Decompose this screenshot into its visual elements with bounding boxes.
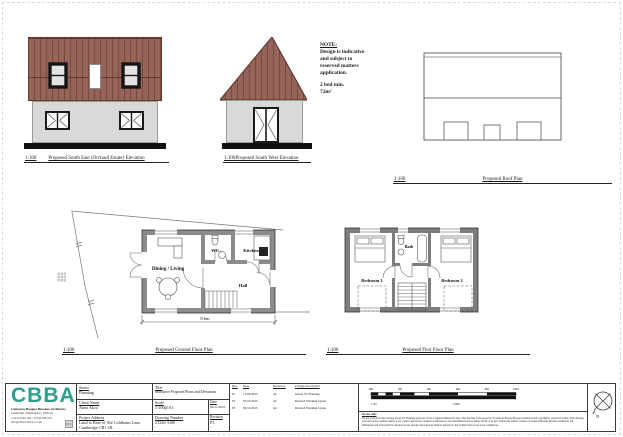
rev-description: Revised Planning layout	[295, 400, 357, 404]
sw-gable-roof	[220, 37, 307, 101]
gf-dimension: 8.6m	[200, 316, 210, 321]
scale-bar-ratio-right: 1:200	[452, 402, 460, 406]
revision-label: Revision	[210, 415, 223, 420]
sw-caption-title: Proposed South West Elevation	[223, 156, 311, 161]
rev-drawn-by: AC	[273, 393, 295, 397]
date-col-header: Date	[243, 385, 273, 389]
title-value: Indicative Proposed Plans and Elevations	[155, 390, 229, 395]
drawn-by-col-header: Drawn by	[273, 385, 295, 389]
gf-room-kitchen-label: Kitchen	[243, 248, 259, 253]
ground-floor-plan-drawing: 8.6m Dining / Living WC Kitchen Hall	[55, 198, 310, 358]
gf-caption-title: Proposed Ground Floor Plan	[62, 348, 306, 353]
scale-tick: 6m	[456, 387, 461, 391]
first-floor-caption: 1:100 Proposed First Floor Plan	[326, 346, 530, 355]
se-stair-window	[89, 64, 101, 89]
se-window-right	[119, 111, 144, 130]
accreditation-stamp-icon	[65, 420, 73, 428]
note-bed-min: 2 bed min.	[320, 82, 392, 89]
scale-value: 1:100@A3	[155, 405, 174, 410]
sw-window	[253, 107, 279, 143]
rev-value: P1	[232, 393, 243, 397]
se-roof-window-right	[121, 62, 141, 89]
gf-room-dining-label: Dining / Living	[152, 267, 185, 272]
address-line2: Cambridge CB1 3JL	[79, 425, 140, 430]
sw-elevation-caption: 1:100 Proposed South West Elevation	[223, 154, 311, 163]
se-plinth	[24, 143, 166, 149]
note-area: 72m²	[320, 89, 392, 96]
sw-plinth	[222, 143, 312, 149]
note-line: application.	[320, 70, 392, 77]
rev-date: 11/04/2023	[243, 393, 273, 397]
ff-room-bath-label: Bath	[405, 244, 414, 249]
scalebar-cell: 0m 2m 4m 6m 8m 10m 1:50 1:200 Do not sca…	[358, 384, 587, 431]
first-floor-plan-drawing: Bedroom 1 Bath Bedroom 2	[328, 208, 538, 358]
scale-tick: 8m	[485, 387, 490, 391]
south-east-elevation-drawing	[0, 0, 200, 170]
disclaimer: Do not scale Do not scale from this draw…	[359, 411, 587, 431]
north-arrow-icon: N	[588, 384, 617, 431]
scale-bar-ratio-left: 1:50	[371, 402, 377, 406]
drawing-sheet: { "note": { "heading": "NOTE:", "l1": "D…	[0, 0, 623, 437]
ff-caption-title: Proposed First Floor Plan	[326, 348, 530, 353]
revisions-cell: Rev. Date Drawn by Change description P1…	[229, 384, 358, 431]
rev-value: P2	[232, 400, 243, 404]
rev-drawn-by: AC	[273, 400, 295, 404]
note-line: Design is indicative	[320, 49, 392, 56]
status-value: Planning	[79, 390, 94, 395]
rev-date: 06/11/2023	[243, 407, 273, 411]
cbba-logo: CBBA	[11, 386, 76, 406]
rev-description: Issued for Planning	[295, 393, 357, 397]
gf-room-wc-label: WC	[211, 248, 219, 253]
revision-row: P1 11/04/2023 AC Issued for Planning	[232, 393, 357, 397]
note-heading: NOTE:	[320, 42, 337, 48]
rev-date: 03/10/2023	[243, 400, 273, 404]
north-cell: N	[587, 384, 615, 431]
note-line: reserved matters	[320, 63, 392, 70]
ff-room-bedroom2-label: Bedroom 2	[441, 278, 463, 283]
rev-value: P3	[232, 407, 243, 411]
se-roof-window-left	[48, 62, 68, 89]
scale-tick: 4m	[427, 387, 432, 391]
details-cell: Status Planning Title Indicative Propose…	[76, 384, 229, 431]
se-window-left	[45, 111, 70, 130]
note-line: and subject to	[320, 56, 392, 63]
change-desc-col-header: Change description	[295, 385, 357, 389]
note-block: NOTE: Design is indicative and subject t…	[320, 42, 392, 96]
revision-value: P3	[210, 420, 223, 425]
rev-drawn-by: AC	[273, 407, 295, 411]
gf-room-hall-label: Hall	[239, 283, 248, 288]
client-value: Anna Akca	[79, 405, 99, 410]
scale-tick: 10m	[513, 387, 520, 391]
se-caption-title: Proposed South East (Orchard Estate) Ele…	[24, 156, 169, 161]
roof-plan-drawing	[420, 48, 565, 143]
roof-plan-caption: 1:100 Proposed Roof Plan	[393, 175, 612, 184]
rev-description: Revised Planning layout	[295, 407, 357, 411]
rev-col-header: Rev.	[232, 385, 243, 389]
ground-floor-caption: 1:100 Proposed Ground Floor Plan	[62, 346, 306, 355]
revision-row: P3 06/11/2023 AC Revised Planning layout	[232, 407, 357, 411]
south-west-elevation-drawing	[215, 30, 320, 155]
scale-tick: 0m	[369, 387, 374, 391]
date-value: 06/11/2023	[210, 405, 225, 409]
roof-caption-title: Proposed Roof Plan	[393, 177, 612, 182]
drawing-number-value: 21326-3100	[155, 420, 183, 425]
scale-bar: 0m 2m 4m 6m 8m 10m 1:50 1:200	[359, 384, 588, 411]
north-label: N	[596, 414, 600, 419]
se-elevation-caption: 1:100 Proposed South East (Orchard Estat…	[24, 154, 169, 163]
revision-row: P2 03/10/2023 AC Revised Planning layout	[232, 400, 357, 404]
scale-tick: 2m	[398, 387, 403, 391]
title-block: CBBA Cameron Bosque Brookes Architects C…	[5, 383, 616, 432]
logo-cell: CBBA Cameron Bosque Brookes Architects C…	[6, 384, 76, 431]
ff-room-bedroom1-label: Bedroom 1	[361, 278, 383, 283]
revision-header-row: Rev. Date Drawn by Change description	[232, 385, 357, 389]
